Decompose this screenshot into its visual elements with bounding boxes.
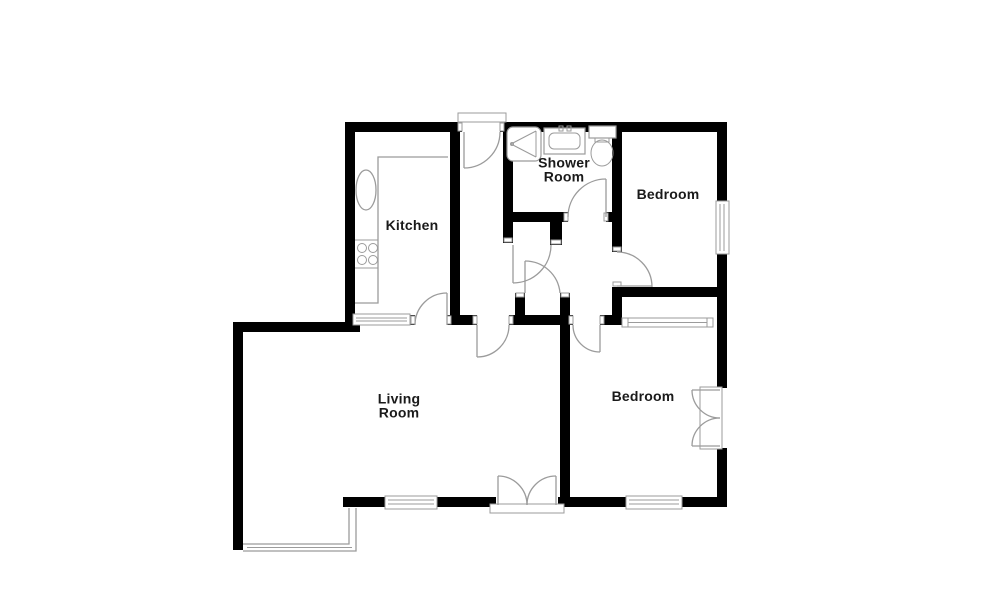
room-label-shower-room: Shower Room: [538, 156, 590, 185]
wardrobe-icon: [622, 318, 713, 327]
bedroom-bottom-door-icon: [573, 325, 600, 352]
living-room-door-icon: [477, 325, 509, 357]
kitchen-door-icon: [415, 293, 447, 325]
floor-plan-page: Kitchen Shower Room Bedroom Living Room …: [0, 0, 1000, 607]
windows: [353, 201, 729, 509]
hob-icon: [358, 244, 378, 265]
kitchen-sink-icon: [356, 170, 376, 210]
floor-plan-drawing: [0, 0, 1000, 607]
entrance-door-icon: [458, 113, 506, 168]
wash-basin-icon: [544, 126, 585, 154]
closet-door-icons: [513, 245, 560, 293]
french-door-bedroom-icon: [692, 387, 722, 449]
shower-tray-icon: [507, 127, 541, 161]
bay-window-icon: [243, 508, 356, 551]
toilet-icon: [589, 126, 616, 166]
room-label-bedroom-top: Bedroom: [637, 187, 700, 201]
bedroom-top-door-icon: [617, 252, 652, 287]
room-label-kitchen: Kitchen: [386, 218, 439, 232]
room-label-living-room: Living Room: [378, 392, 420, 421]
french-door-living-icon: [490, 476, 564, 513]
room-label-bedroom-bottom: Bedroom: [612, 389, 675, 403]
